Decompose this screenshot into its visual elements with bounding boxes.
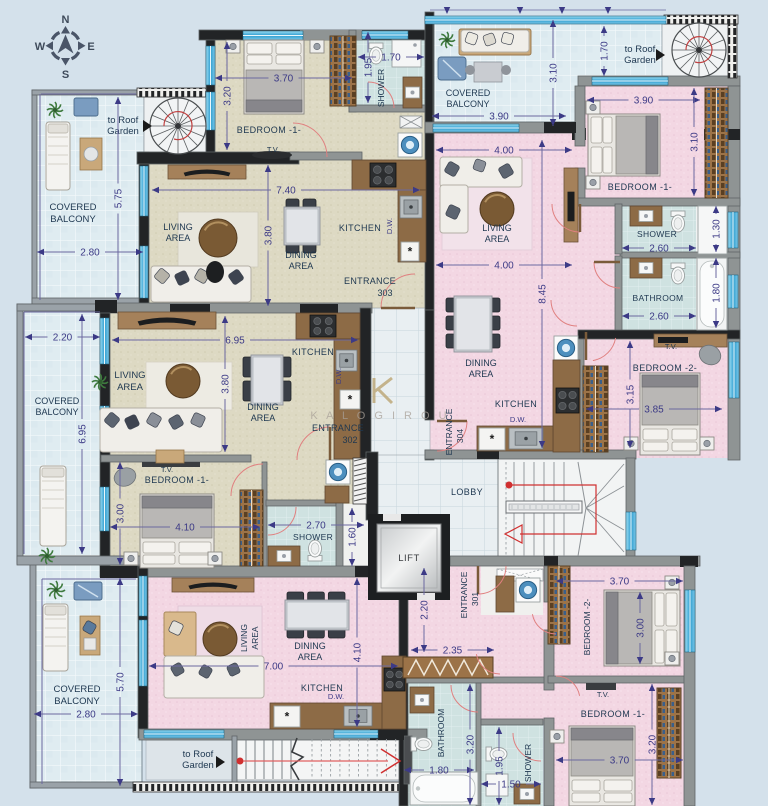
svg-text:*: * [490,432,495,446]
svg-text:ENTRANCE: ENTRANCE [312,423,364,433]
svg-text:Garden: Garden [107,126,139,137]
svg-text:3.80: 3.80 [264,225,275,245]
svg-text:*: * [408,245,413,259]
svg-text:AREA: AREA [485,234,510,244]
svg-text:1.50: 1.50 [501,780,521,791]
svg-text:2.35: 2.35 [443,646,463,657]
svg-text:*: * [285,710,290,724]
svg-text:BALCONY: BALCONY [54,696,100,707]
svg-text:4.10: 4.10 [353,642,364,662]
svg-text:KITCHEN: KITCHEN [339,223,381,233]
svg-text:ENTRANCE: ENTRANCE [459,571,469,618]
svg-text:DINING: DINING [294,641,326,651]
svg-text:BEDROOM -1-: BEDROOM -1- [581,709,645,719]
svg-text:AREA: AREA [117,382,144,393]
svg-text:4.00: 4.00 [494,146,514,157]
svg-text:3.00: 3.00 [116,503,127,523]
svg-text:COVERED: COVERED [54,684,101,695]
svg-text:3.00: 3.00 [636,618,647,638]
svg-text:AREA: AREA [251,413,276,423]
svg-text:AREA: AREA [469,369,494,379]
svg-text:to Roof: to Roof [183,749,214,760]
svg-text:T.V.: T.V. [161,465,173,474]
svg-text:*: * [348,393,353,407]
svg-text:T.V.: T.V. [267,145,279,154]
svg-text:E: E [87,41,94,53]
svg-text:DINING: DINING [465,358,497,368]
svg-text:SHOWER: SHOWER [523,744,533,782]
svg-text:BALCONY: BALCONY [35,407,78,417]
svg-text:COVERED: COVERED [50,202,97,213]
svg-text:302: 302 [342,435,357,445]
svg-text:8.45: 8.45 [538,284,549,304]
svg-text:3.80: 3.80 [221,374,232,394]
svg-text:2.80: 2.80 [80,248,100,259]
svg-text:LOBBY: LOBBY [451,487,483,497]
svg-text:LIVING: LIVING [239,624,249,652]
svg-text:3.90: 3.90 [634,96,654,107]
svg-text:3.20: 3.20 [223,86,234,106]
svg-text:6.95: 6.95 [225,336,245,347]
svg-text:K A L O G I R O U: K A L O G I R O U [310,410,449,422]
svg-text:2.70: 2.70 [306,521,326,532]
svg-text:BEDROOM -2-: BEDROOM -2- [582,598,592,655]
svg-text:301: 301 [470,592,480,606]
svg-text:D.W.: D.W. [328,692,344,701]
svg-text:1.80: 1.80 [712,283,723,303]
svg-text:LIFT: LIFT [398,553,420,564]
svg-text:KITCHEN: KITCHEN [292,347,334,357]
svg-text:T.V.: T.V. [665,342,677,351]
svg-text:6.95: 6.95 [78,424,89,444]
svg-text:LIVING: LIVING [482,223,512,233]
svg-text:LIVING: LIVING [114,370,145,381]
svg-text:Garden: Garden [624,55,656,66]
svg-text:1.95: 1.95 [495,756,506,776]
svg-text:BALCONY: BALCONY [50,214,96,225]
svg-text:7.40: 7.40 [276,186,296,197]
svg-text:KITCHEN: KITCHEN [495,399,537,409]
svg-text:3.20: 3.20 [648,734,659,754]
svg-text:to Roof: to Roof [108,115,139,126]
svg-text:BEDROOM -1-: BEDROOM -1- [145,475,209,485]
svg-text:3.70: 3.70 [610,577,630,588]
svg-text:2.20: 2.20 [53,333,73,344]
svg-text:SHOWER: SHOWER [376,69,386,107]
svg-text:2.60: 2.60 [649,312,669,323]
svg-text:BALCONY: BALCONY [446,99,489,109]
svg-text:D.W.: D.W. [334,368,343,384]
svg-text:BATHROOM: BATHROOM [633,293,684,303]
svg-text:SHOWER: SHOWER [293,532,333,542]
svg-text:AREA: AREA [250,626,260,649]
svg-text:7.00: 7.00 [264,662,284,673]
svg-text:3.15: 3.15 [626,384,637,404]
svg-text:ENTRANCE: ENTRANCE [344,276,396,286]
svg-text:SHOWER: SHOWER [637,229,677,239]
svg-text:N: N [62,14,70,26]
svg-text:1.70: 1.70 [600,41,611,61]
svg-text:BATHROOM: BATHROOM [436,709,446,757]
svg-text:Garden: Garden [182,760,214,771]
svg-text:303: 303 [377,288,392,298]
svg-text:5.75: 5.75 [114,188,125,208]
svg-text:304: 304 [455,429,465,443]
svg-text:3.10: 3.10 [549,63,560,83]
svg-text:COVERED: COVERED [446,88,491,98]
svg-text:D.W.: D.W. [385,218,394,234]
svg-text:BEDROOM -2-: BEDROOM -2- [633,363,697,373]
svg-text:LIVING: LIVING [163,222,193,232]
svg-text:1.60: 1.60 [348,527,359,547]
svg-text:3.70: 3.70 [274,74,294,85]
svg-text:3.90: 3.90 [489,112,509,123]
svg-text:3.20: 3.20 [466,734,477,754]
svg-text:3.85: 3.85 [644,405,664,416]
svg-text:W: W [35,41,46,53]
svg-text:1.70: 1.70 [381,53,401,64]
svg-text:AREA: AREA [298,652,323,662]
svg-text:4.10: 4.10 [175,523,195,534]
svg-text:2.80: 2.80 [76,710,96,721]
svg-text:AREA: AREA [289,261,314,271]
svg-text:AREA: AREA [166,233,191,243]
svg-text:D.W.: D.W. [510,415,526,424]
svg-text:COVERED: COVERED [35,396,80,406]
svg-text:T.V.: T.V. [597,690,609,699]
svg-text:DINING: DINING [247,402,279,412]
svg-text:1.80: 1.80 [429,766,449,777]
svg-text:3.10: 3.10 [690,132,701,152]
svg-text:2.60: 2.60 [649,244,669,255]
svg-text:5.70: 5.70 [116,672,127,692]
svg-text:BEDROOM -1-: BEDROOM -1- [237,125,301,135]
svg-text:DINING: DINING [285,250,317,260]
svg-text:3.70: 3.70 [610,756,630,767]
svg-text:2.20: 2.20 [420,600,431,620]
svg-text:S: S [62,69,69,81]
svg-text:BEDROOM -1-: BEDROOM -1- [608,182,672,192]
svg-text:4.00: 4.00 [494,261,514,272]
svg-text:1.30: 1.30 [712,219,723,239]
svg-text:1.95: 1.95 [364,57,375,77]
svg-text:to Roof: to Roof [625,44,656,55]
